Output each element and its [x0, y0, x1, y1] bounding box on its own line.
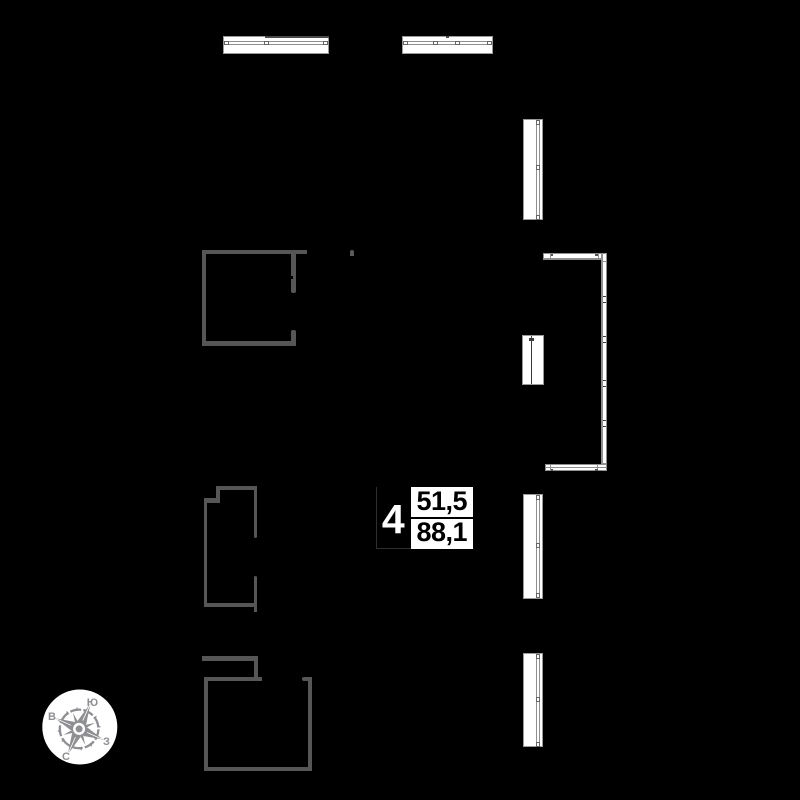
- svg-text:В: В: [48, 711, 56, 723]
- svg-text:Ю: Ю: [87, 697, 98, 709]
- svg-text:С: С: [62, 751, 70, 763]
- svg-text:З: З: [103, 736, 110, 748]
